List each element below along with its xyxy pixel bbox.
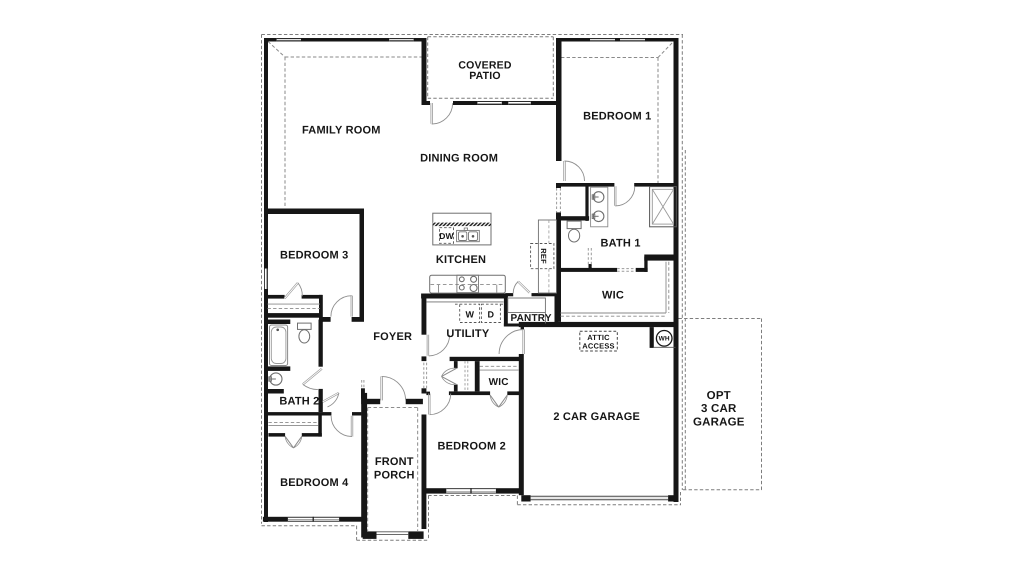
svg-text:BEDROOM 3: BEDROOM 3 (280, 250, 348, 262)
svg-text:DW: DW (439, 231, 454, 241)
svg-text:BEDROOM 4: BEDROOM 4 (280, 477, 349, 489)
svg-text:KITCHEN: KITCHEN (436, 254, 486, 266)
svg-text:FOYER: FOYER (373, 331, 412, 343)
svg-text:D: D (488, 309, 495, 319)
svg-text:PORCH: PORCH (374, 469, 415, 481)
svg-text:DINING ROOM: DINING ROOM (420, 153, 498, 165)
svg-text:PANTRY: PANTRY (510, 313, 551, 324)
svg-text:REF: REF (539, 248, 548, 264)
svg-text:FAMILY ROOM: FAMILY ROOM (302, 124, 381, 136)
svg-text:PATIO: PATIO (469, 70, 501, 82)
svg-text:BEDROOM 1: BEDROOM 1 (583, 111, 651, 123)
svg-text:UTILITY: UTILITY (446, 328, 489, 340)
svg-text:BATH 1: BATH 1 (601, 237, 641, 249)
svg-text:WH: WH (659, 336, 670, 343)
svg-text:W: W (466, 309, 475, 319)
svg-text:BATH 2: BATH 2 (279, 395, 319, 407)
svg-text:2 CAR GARAGE: 2 CAR GARAGE (553, 411, 640, 423)
svg-text:WIC: WIC (489, 377, 509, 388)
svg-text:ACCESS: ACCESS (582, 341, 614, 350)
svg-text:3 CAR: 3 CAR (701, 403, 737, 415)
svg-text:BEDROOM 2: BEDROOM 2 (437, 440, 505, 452)
svg-text:FRONT: FRONT (375, 456, 414, 468)
svg-text:GARAGE: GARAGE (693, 416, 745, 428)
svg-text:OPT: OPT (707, 390, 731, 402)
svg-text:WIC: WIC (602, 290, 624, 302)
